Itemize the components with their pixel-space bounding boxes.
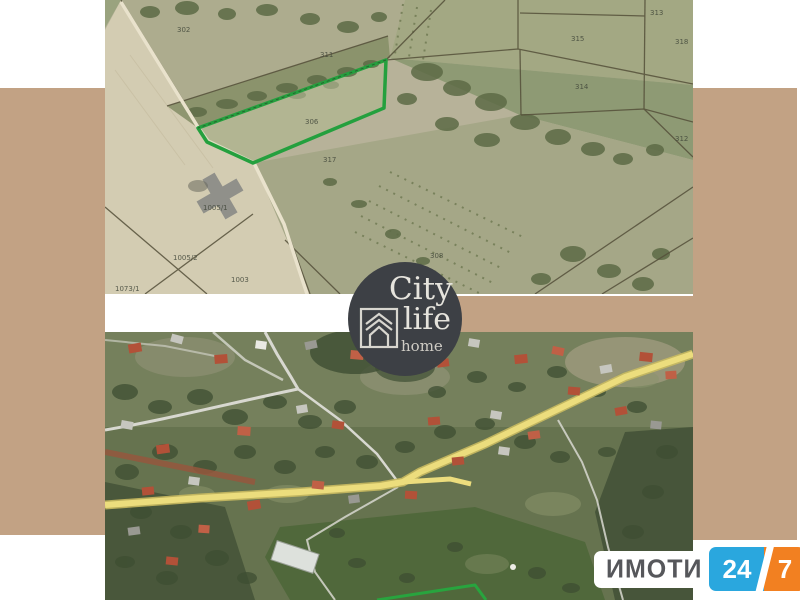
parcel-label: 1003 — [231, 276, 249, 284]
parcel-label: 306 — [305, 118, 319, 126]
terrain-regions — [105, 0, 693, 294]
imoti-number-24: 24 — [723, 554, 752, 585]
listing-collage: 302 313 311 315 314 318 312 306 317 308 … — [0, 0, 800, 600]
parcel-label: 313 — [650, 9, 663, 17]
house-icon — [359, 307, 399, 349]
cadastral-map-image: 302 313 311 315 314 318 312 306 317 308 … — [105, 0, 693, 294]
parcel-label: 1073/1 — [115, 285, 140, 293]
imoti-247-block: 24 7 — [709, 547, 800, 591]
left-beige-panel — [0, 88, 105, 535]
citylife-word-home: home — [401, 337, 443, 355]
imoti-number-7: 7 — [778, 554, 792, 585]
parcel-label: 1005/2 — [173, 254, 198, 262]
parcel-label: 308 — [430, 252, 443, 260]
parcel-label: 317 — [323, 156, 336, 164]
parcel-label: 1005/1 — [203, 204, 228, 212]
citylife-word-city: City — [389, 273, 453, 305]
white-tank — [510, 564, 516, 570]
imoti-name-pill: ИМОТИ — [594, 551, 718, 588]
citylife-word-life: life — [403, 304, 451, 335]
imoti-name: ИМОТИ — [606, 554, 702, 584]
citylife-logo: City life home — [348, 262, 462, 376]
building-shadow — [188, 180, 208, 192]
parcel-label: 311 — [320, 51, 333, 59]
parcel-label: 315 — [571, 35, 584, 43]
parcel-label: 318 — [675, 38, 688, 46]
parcel-label: 314 — [575, 83, 589, 91]
imoti-247-logo: ИМОТИ 24 7 — [594, 547, 800, 591]
middle-beige-band — [404, 296, 797, 332]
parcel-label: 302 — [177, 26, 190, 34]
parcel-label: 312 — [675, 135, 688, 143]
